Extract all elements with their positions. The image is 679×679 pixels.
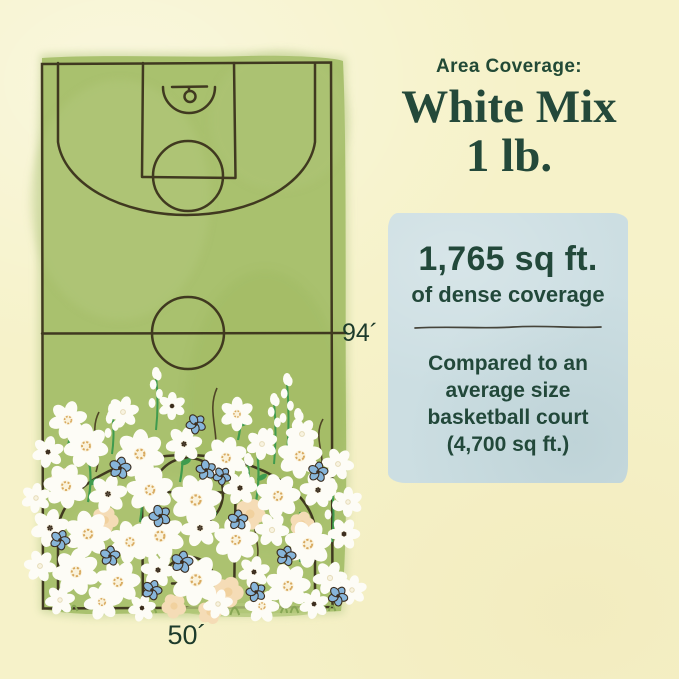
comparison-text: Compared to an average size basketball c… — [402, 350, 614, 458]
comparison-line: basketball court — [402, 404, 614, 431]
title-line-2: 1 lb. — [378, 132, 640, 181]
court-length-label: 94´ — [342, 319, 378, 347]
header-block: Area Coverage: White Mix 1 lb. — [378, 56, 640, 181]
comparison-line: Compared to an — [402, 350, 614, 377]
court-width-label: 50´ — [167, 620, 206, 650]
infographic-canvas: 94´ 50´ Area Coverage: White Mix 1 lb. 1… — [0, 0, 679, 679]
comparison-line: (4,700 sq ft.) — [402, 431, 614, 458]
coverage-stat: 1,765 sq ft. — [402, 238, 614, 280]
page-title: White Mix 1 lb. — [378, 83, 640, 181]
coverage-stat-caption: of dense coverage — [402, 281, 614, 309]
basketball-court-illustration: 94´ 50´ — [0, 0, 380, 679]
hand-drawn-divider — [413, 324, 603, 330]
midcourt-line — [42, 333, 346, 334]
coverage-stats-card: 1,765 sq ft. of dense coverage Compared … — [388, 213, 628, 483]
eyebrow-label: Area Coverage: — [378, 56, 640, 78]
comparison-line: average size — [402, 377, 614, 404]
title-line-1: White Mix — [378, 83, 640, 132]
